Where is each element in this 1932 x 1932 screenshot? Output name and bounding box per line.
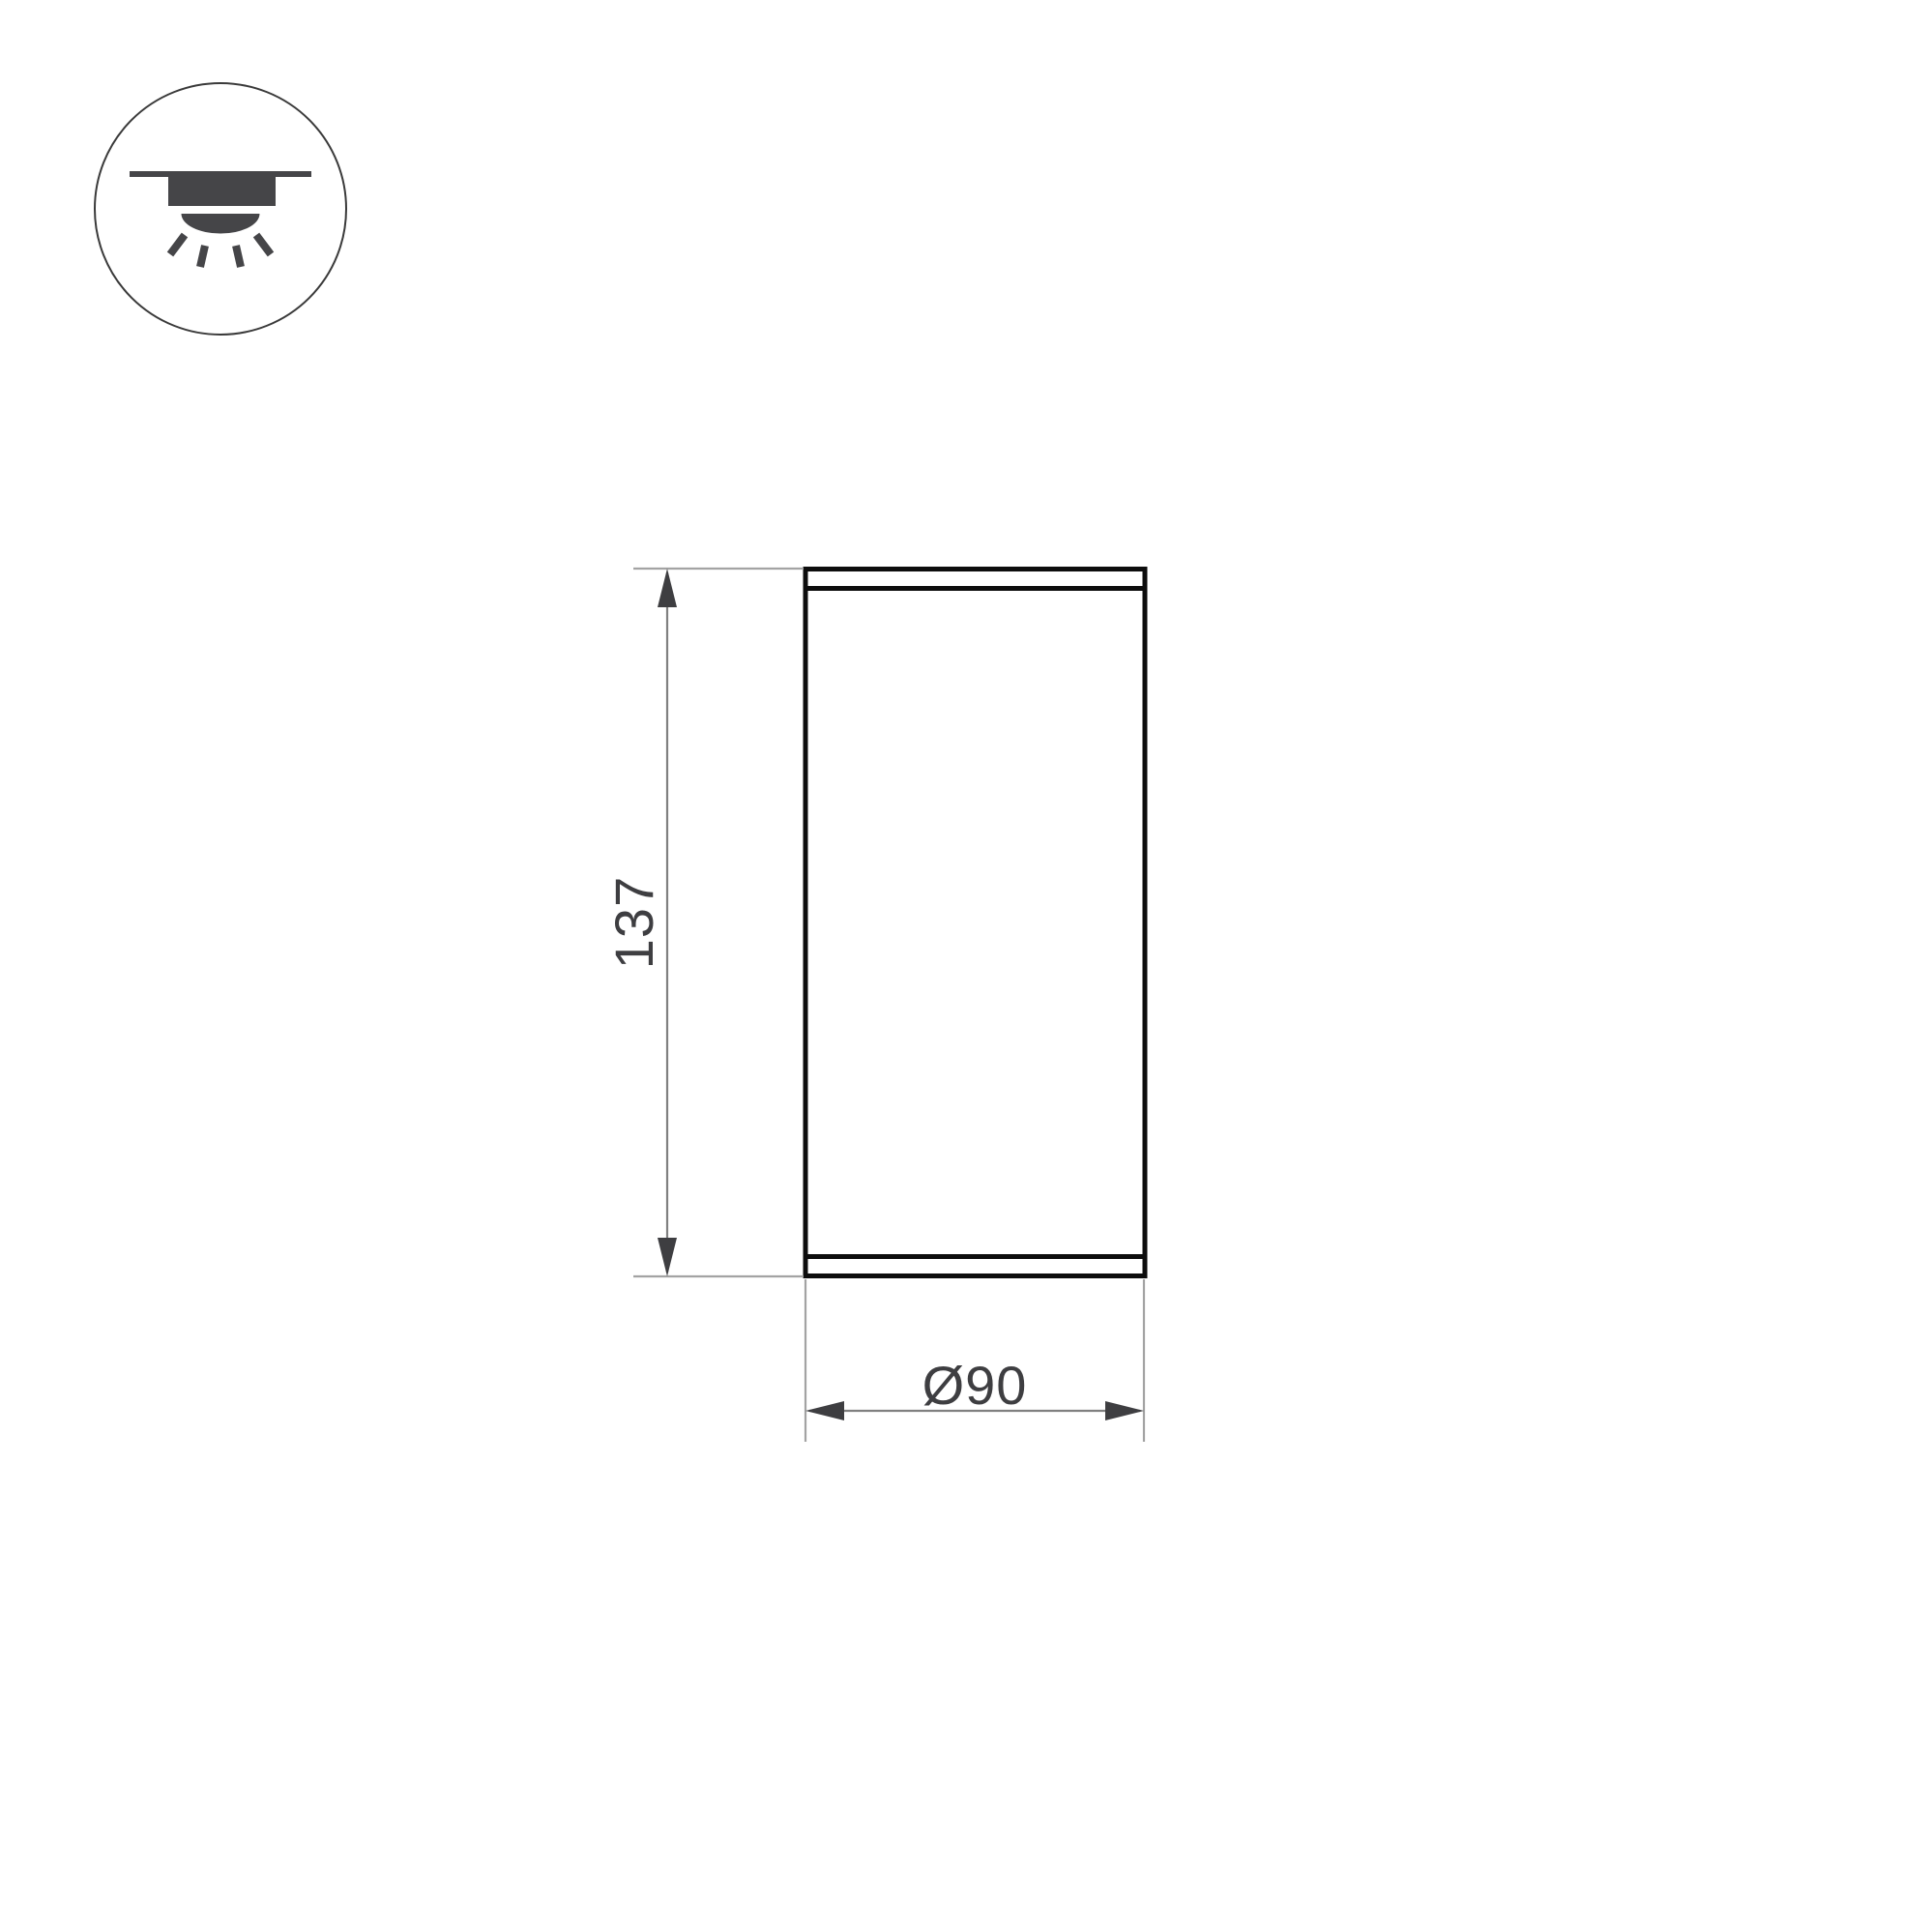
- drawing-sheet: 137 Ø90: [0, 0, 1932, 1932]
- fixture-body-outline: [805, 570, 1145, 1276]
- surface-mounted-ceiling-downlight-icon: [95, 83, 346, 335]
- diameter-arrow-right: [1105, 1401, 1144, 1420]
- light-dome: [182, 214, 260, 233]
- light-ray-outer-right: [256, 235, 271, 254]
- icon-ring-circle: [95, 83, 346, 335]
- light-ray-outer-left: [170, 235, 185, 254]
- diameter-dimension-label: Ø90: [922, 1355, 1028, 1416]
- diameter-arrow-left: [805, 1401, 844, 1420]
- ceiling-line: [130, 171, 311, 177]
- luminaire-housing: [168, 177, 276, 206]
- height-dimension: 137: [603, 569, 804, 1276]
- diameter-dimension: Ø90: [805, 1279, 1144, 1442]
- light-ray-inner-left: [200, 246, 205, 267]
- fixture-front-view: [805, 570, 1145, 1276]
- height-dimension-label: 137: [603, 876, 664, 969]
- light-ray-inner-right: [236, 246, 241, 267]
- technical-drawing-canvas: 137 Ø90: [0, 0, 1932, 1932]
- height-arrow-down: [658, 1238, 677, 1276]
- height-arrow-up: [658, 569, 677, 607]
